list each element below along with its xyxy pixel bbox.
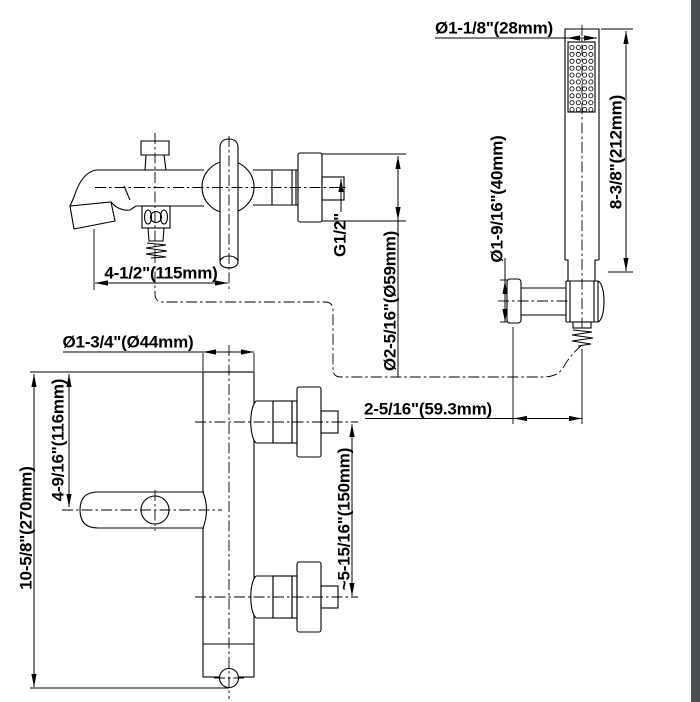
dim-label-hose-offset: 2-5/16"(59.3mm) <box>364 401 492 418</box>
dim-label-port-spacing: ~5-15/16"(150mm) <box>336 448 353 590</box>
dim-label-holder-diameter: Ø1-9/16"(40mm) <box>489 135 506 262</box>
side-view-faucet <box>70 139 344 268</box>
spray-grid <box>570 45 593 111</box>
technical-drawing: Ø1-1/8"(28mm) 8-3/8"(212mm) Ø1-9/16"(40m… <box>0 0 700 702</box>
shower-hose-connector <box>572 322 593 346</box>
shower-hose-spring <box>572 330 593 346</box>
shower-handle <box>565 260 604 322</box>
hose-spring <box>146 243 167 258</box>
hose-centerline <box>155 252 582 377</box>
spout <box>70 170 136 229</box>
dim-label-thread-size: G1/2" <box>332 213 349 257</box>
dim-label-body-diameter: Ø1-3/4"(Ø44mm) <box>63 334 194 351</box>
hand-shower <box>507 29 604 346</box>
centerlines <box>62 25 582 699</box>
dimension-lines <box>34 31 626 687</box>
hose-connector <box>142 206 170 258</box>
dim-label-handle-height: 4-9/16"(116mm) <box>50 379 67 501</box>
right-gray-strip <box>691 0 700 702</box>
extension-lines <box>30 29 633 688</box>
dim-label-total-height: 10-5/8"(270mm) <box>18 466 35 589</box>
dim-label-head-diameter: Ø1-1/8"(28mm) <box>435 20 553 37</box>
dim-label-escutcheon-diameter: Ø2-5/16"(Ø59mm) <box>382 231 399 371</box>
dim-label-spout-reach: 4-1/2"(115mm) <box>104 265 217 282</box>
dim-label-shower-length: 8-3/8"(212mm) <box>608 95 625 209</box>
mixer-body <box>203 372 254 677</box>
front-view-mixer <box>80 372 338 688</box>
dimension-arrows <box>31 31 628 687</box>
